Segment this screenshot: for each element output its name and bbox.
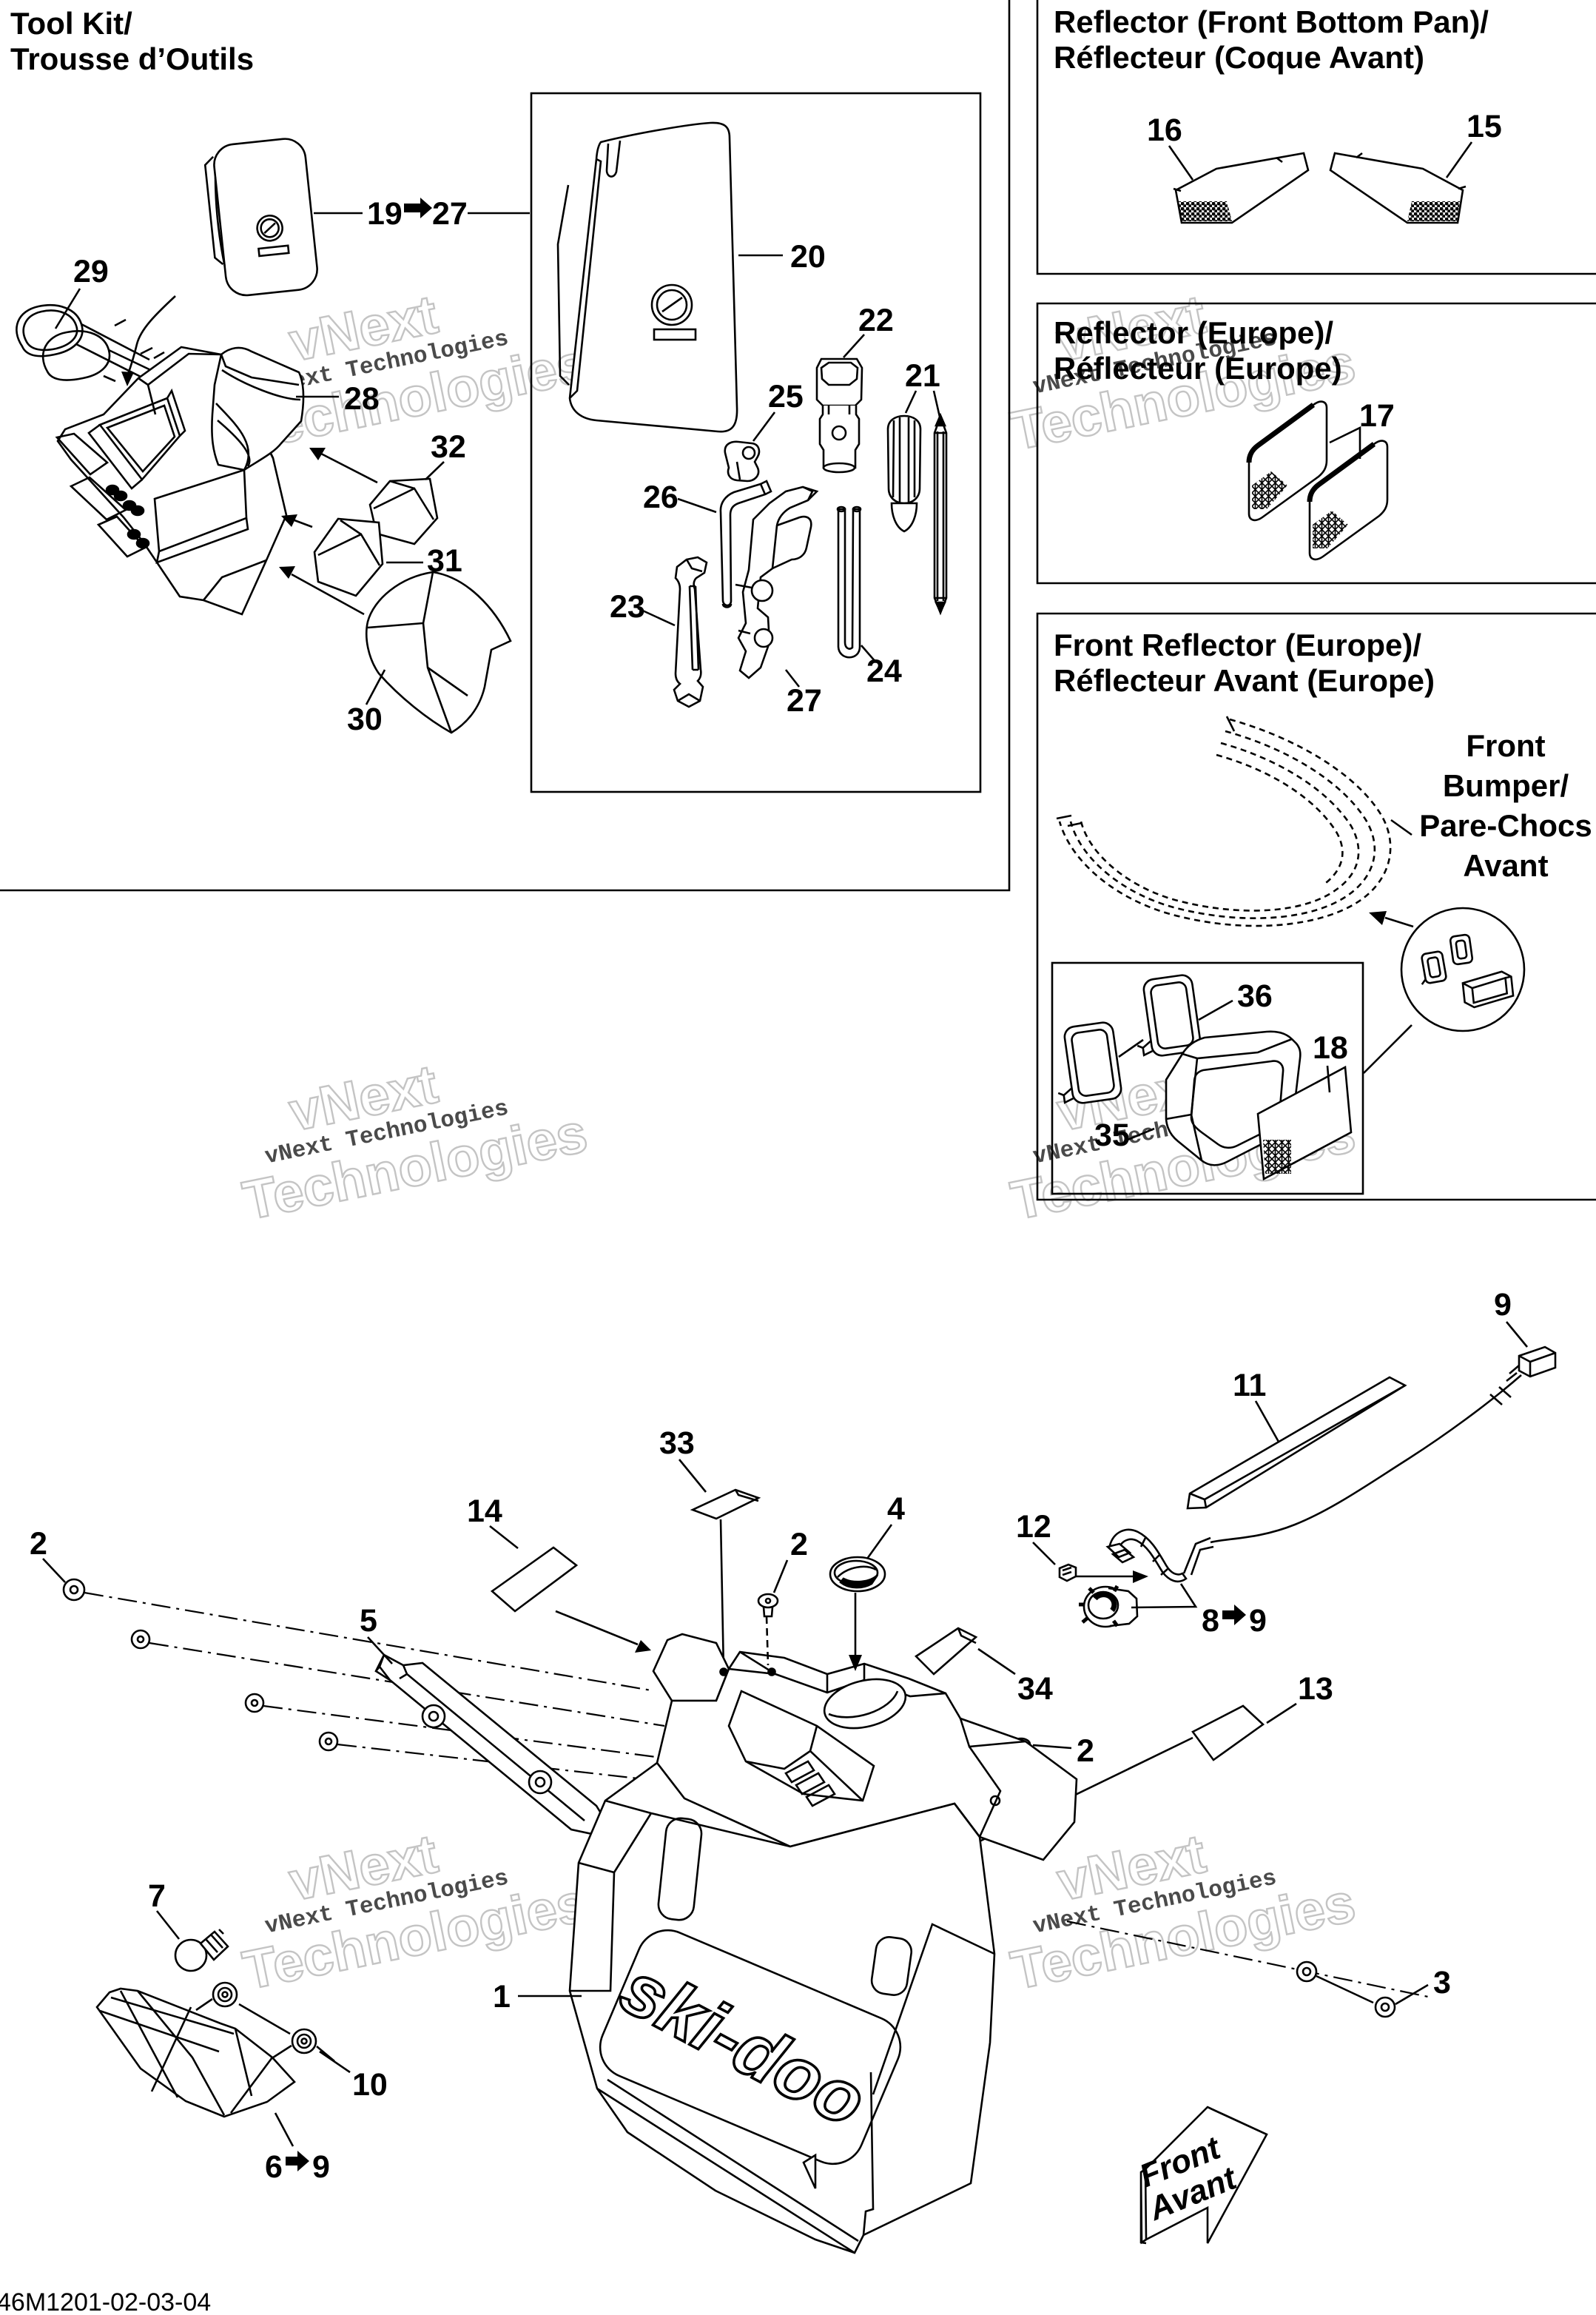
svg-text:5: 5 bbox=[360, 1603, 377, 1639]
svg-text:34: 34 bbox=[1017, 1671, 1053, 1707]
svg-text:Pare-Chocs: Pare-Chocs bbox=[1419, 808, 1592, 843]
svg-text:24: 24 bbox=[866, 653, 902, 689]
svg-text:Reflector (Europe)/: Reflector (Europe)/ bbox=[1054, 315, 1333, 350]
svg-text:3: 3 bbox=[1433, 1965, 1451, 2000]
svg-text:13: 13 bbox=[1298, 1671, 1333, 1707]
svg-text:Tool Kit/: Tool Kit/ bbox=[10, 6, 132, 41]
svg-text:25: 25 bbox=[768, 379, 804, 414]
svg-text:Réflecteur (Coque Avant): Réflecteur (Coque Avant) bbox=[1054, 40, 1424, 75]
svg-text:2: 2 bbox=[30, 1526, 47, 1562]
svg-text:14: 14 bbox=[467, 1494, 502, 1529]
svg-text:19: 19 bbox=[367, 196, 403, 232]
svg-text:36: 36 bbox=[1237, 978, 1273, 1014]
svg-text:Front Reflector (Europe)/: Front Reflector (Europe)/ bbox=[1054, 628, 1421, 662]
svg-text:21: 21 bbox=[905, 358, 940, 394]
svg-text:2: 2 bbox=[1077, 1733, 1094, 1769]
svg-text:18: 18 bbox=[1313, 1030, 1348, 1066]
svg-text:7: 7 bbox=[148, 1878, 166, 1914]
svg-text:Avant: Avant bbox=[1463, 848, 1548, 883]
svg-text:22: 22 bbox=[858, 303, 894, 338]
svg-text:Bumper/: Bumper/ bbox=[1443, 768, 1569, 803]
svg-text:6: 6 bbox=[265, 2149, 283, 2185]
svg-text:Réflecteur (Europe): Réflecteur (Europe) bbox=[1054, 351, 1342, 386]
svg-text:27: 27 bbox=[787, 683, 822, 719]
svg-text:28: 28 bbox=[344, 381, 380, 417]
svg-text:11: 11 bbox=[1233, 1368, 1266, 1403]
svg-text:2: 2 bbox=[790, 1527, 808, 1562]
svg-text:Reflector (Front Bottom Pan)/: Reflector (Front Bottom Pan)/ bbox=[1054, 4, 1489, 39]
svg-text:20: 20 bbox=[790, 239, 826, 275]
svg-text:27: 27 bbox=[432, 196, 468, 232]
svg-text:31: 31 bbox=[427, 543, 462, 579]
svg-text:29: 29 bbox=[73, 254, 109, 289]
svg-text:35: 35 bbox=[1094, 1118, 1130, 1153]
svg-text:4: 4 bbox=[887, 1491, 905, 1527]
svg-text:17: 17 bbox=[1359, 398, 1395, 434]
svg-text:9: 9 bbox=[312, 2149, 330, 2185]
svg-text:10: 10 bbox=[352, 2067, 388, 2103]
svg-text:33: 33 bbox=[659, 1425, 695, 1461]
svg-text:9: 9 bbox=[1494, 1287, 1512, 1323]
svg-text:Trousse d’Outils: Trousse d’Outils bbox=[10, 41, 254, 76]
svg-text:26: 26 bbox=[643, 480, 679, 515]
svg-text:15: 15 bbox=[1467, 109, 1502, 144]
svg-text:9: 9 bbox=[1249, 1603, 1267, 1639]
svg-text:46M1201-02-03-04: 46M1201-02-03-04 bbox=[0, 2288, 211, 2315]
svg-text:16: 16 bbox=[1147, 112, 1182, 148]
svg-text:8: 8 bbox=[1202, 1603, 1219, 1639]
svg-text:12: 12 bbox=[1016, 1509, 1051, 1545]
svg-text:23: 23 bbox=[610, 589, 645, 625]
svg-text:1: 1 bbox=[493, 1979, 511, 2015]
svg-text:30: 30 bbox=[347, 702, 383, 737]
svg-text:Front: Front bbox=[1466, 728, 1545, 763]
svg-text:Réflecteur Avant (Europe): Réflecteur Avant (Europe) bbox=[1054, 663, 1435, 698]
svg-text:32: 32 bbox=[431, 429, 466, 465]
